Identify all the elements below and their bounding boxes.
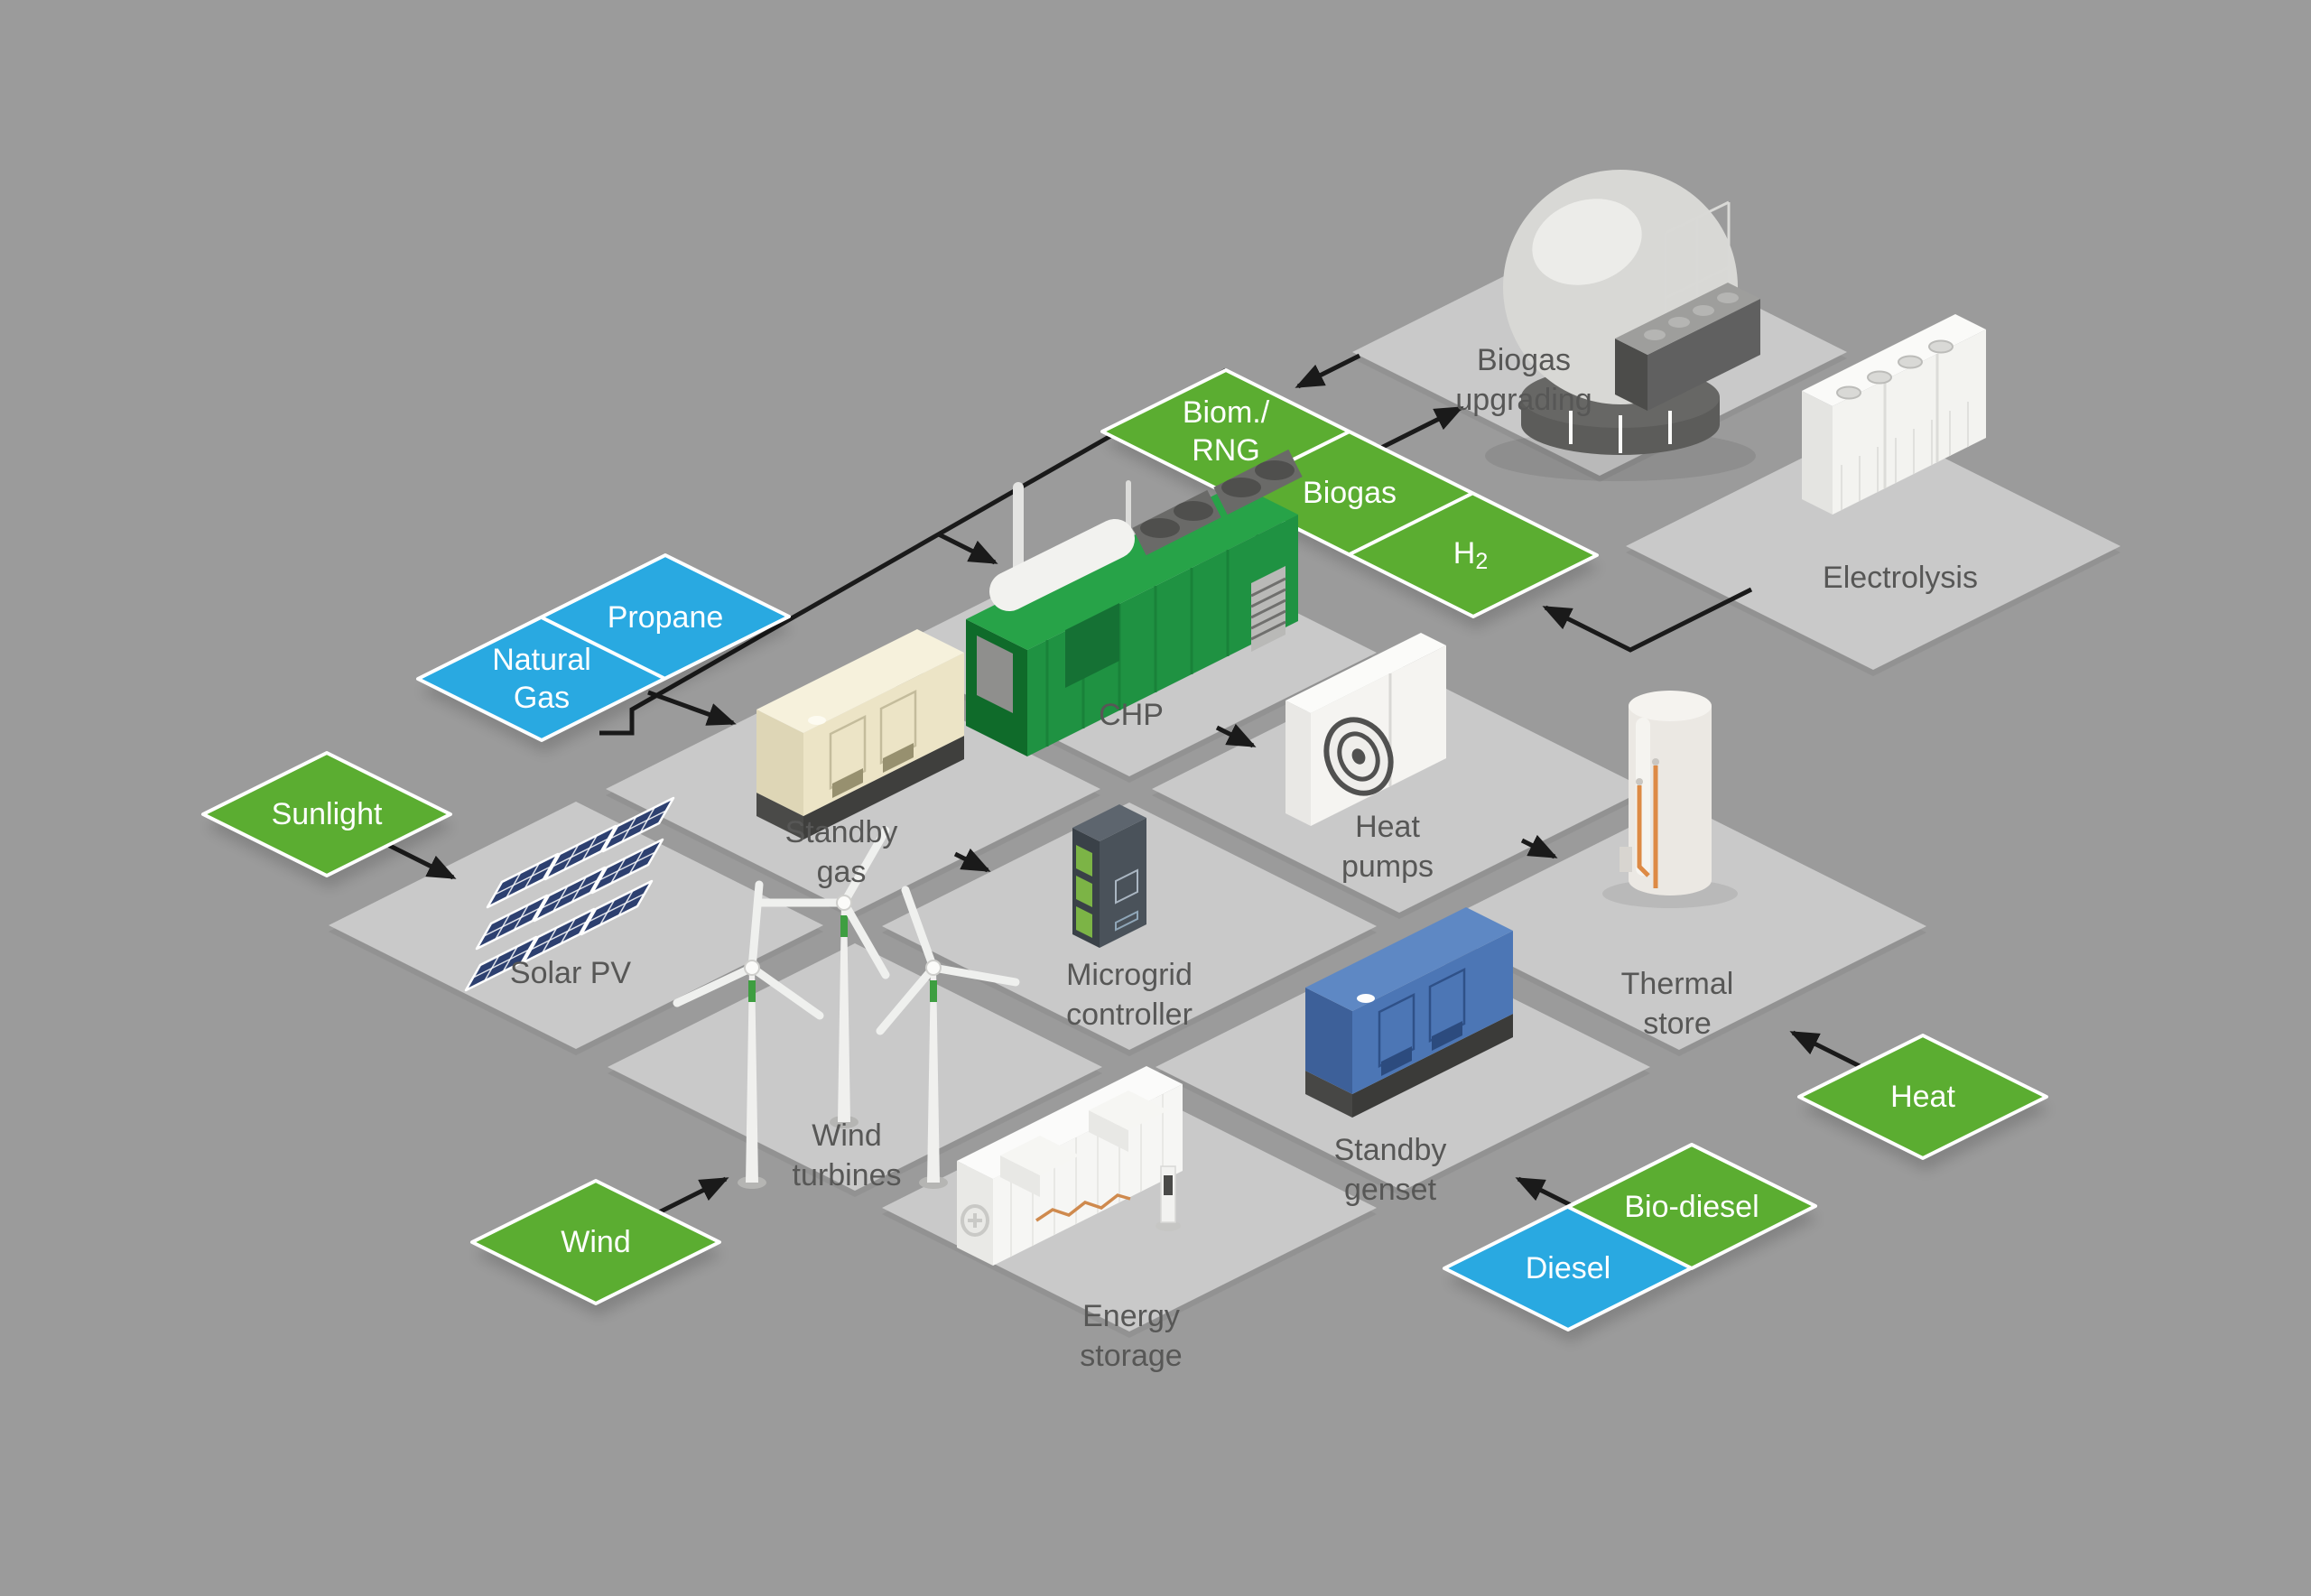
label-wind-turbines-2: turbines (793, 1158, 902, 1192)
label-standby-gas-2: gas (817, 855, 867, 889)
label-energy-storage: Energy (1082, 1299, 1180, 1333)
label-heat-pumps-2: pumps (1341, 849, 1434, 884)
label-electrolysis: Electrolysis (1823, 561, 1978, 595)
label-propane: Propane (608, 600, 724, 635)
label-standby-gas: Standby (785, 815, 898, 849)
label-biom-rng: Biom./ (1183, 395, 1270, 430)
label-standby-genset: Standby (1334, 1133, 1447, 1167)
label-microgrid-controller-2: controller (1066, 997, 1193, 1032)
label-biogas-upgrading: Biogas (1477, 343, 1571, 377)
label-natural-gas: Natural (492, 643, 591, 677)
label-energy-storage-2: storage (1080, 1339, 1182, 1373)
label-natural-gas-2: Gas (514, 681, 570, 715)
label-biogas-upgrading-2: upgrading (1455, 383, 1592, 417)
label-diesel: Diesel (1526, 1251, 1610, 1285)
label-microgrid-controller: Microgrid (1066, 958, 1193, 992)
label-heat: Heat (1890, 1080, 1955, 1114)
label-heat-pumps: Heat (1355, 810, 1420, 844)
label-biogas: Biogas (1303, 476, 1397, 510)
label-standby-genset-2: genset (1344, 1173, 1437, 1207)
label-wind-turbines: Wind (812, 1118, 881, 1153)
label-sunlight: Sunlight (272, 797, 383, 831)
microgrid-diagram: Biogas upgrading Electrolysis CHP Standb… (0, 0, 2311, 1596)
label-wind: Wind (561, 1225, 630, 1259)
label-bio-diesel: Bio-diesel (1624, 1190, 1759, 1224)
label-thermal-store-2: store (1643, 1007, 1712, 1041)
microgrid-controller-icon (1072, 804, 1146, 948)
label-solar-pv: Solar PV (510, 956, 631, 990)
label-chp: CHP (1099, 698, 1164, 732)
label-biom-rng-2: RNG (1192, 433, 1260, 468)
label-thermal-store: Thermal (1621, 967, 1734, 1001)
